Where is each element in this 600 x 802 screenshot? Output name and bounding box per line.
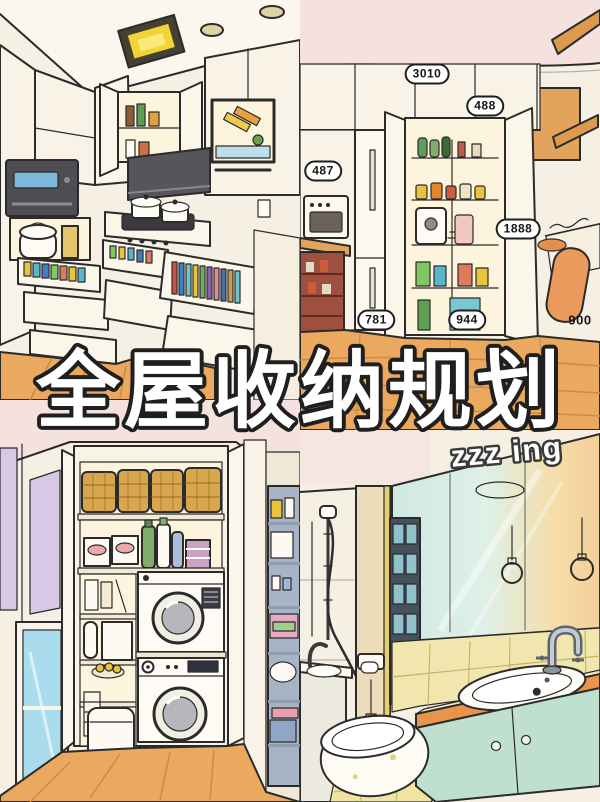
built-in-oven <box>6 160 78 216</box>
hall-shelf <box>244 440 300 802</box>
pantry-cabinet-open <box>405 118 505 335</box>
cabinet-handle <box>492 742 501 751</box>
dimension-label-floor-left: 781 <box>357 310 395 331</box>
storage-boxes <box>84 536 138 566</box>
pull-down-rack <box>212 100 274 170</box>
dimension-label-pantry-wall: 3010 <box>405 64 450 85</box>
dimension-label-left-counter: 487 <box>304 161 342 182</box>
kitchen-right-counter <box>254 230 300 400</box>
pantry-ceiling <box>300 0 600 64</box>
washer <box>138 658 224 742</box>
storage-plan-poster: 3010 488 487 1888 781 944 900 全屋收纳规划 zzz… <box>0 0 600 802</box>
cabinet-handle <box>522 736 531 745</box>
mini-oven <box>304 196 348 238</box>
laundry-cabinet <box>62 444 244 752</box>
pantry-illustration <box>300 0 600 430</box>
laundry-illustration <box>0 400 300 802</box>
rice-cooker <box>20 223 56 258</box>
light-switch <box>258 200 270 217</box>
kitchen-illustration <box>0 0 300 400</box>
spot-light <box>260 6 284 18</box>
dryer <box>138 572 224 652</box>
cooking-pot <box>161 200 189 223</box>
dimension-label-walkway: 900 <box>560 310 599 331</box>
bathroom-illustration <box>300 430 600 802</box>
dimension-label-floor-center: 944 <box>448 310 486 331</box>
rice-cooker-shelf <box>10 218 90 260</box>
brown-shelf <box>300 252 344 332</box>
range-hood <box>128 148 210 200</box>
dimension-label-upper-cabinet: 488 <box>466 96 504 117</box>
dimension-label-cabinet-height: 1888 <box>496 219 541 240</box>
right-upper-cabinet <box>205 40 300 217</box>
spot-light <box>201 24 223 36</box>
cooking-pot <box>131 195 161 219</box>
bathroom-ceiling <box>300 430 430 484</box>
pantry-floor <box>300 330 600 430</box>
wicker-baskets <box>82 468 221 512</box>
